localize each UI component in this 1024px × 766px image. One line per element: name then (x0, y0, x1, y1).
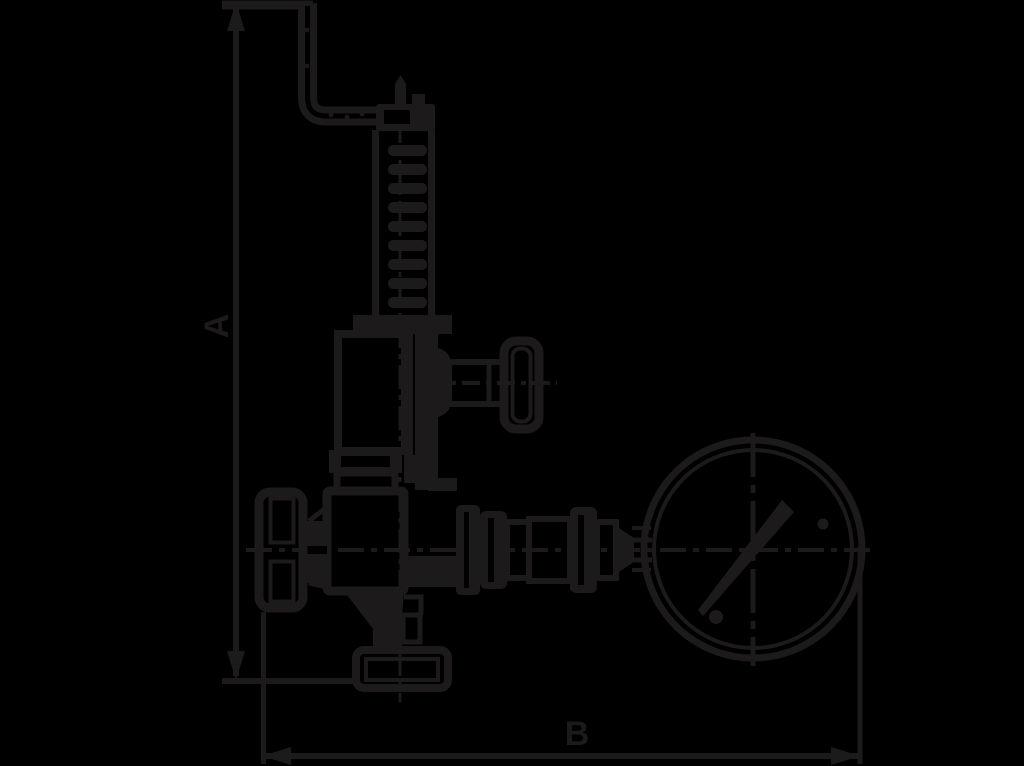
dimension-b-label: B (565, 715, 590, 753)
branch-face-collar-slot (464, 512, 469, 588)
adjusting-stem-tip (395, 75, 406, 84)
bottom-flange (356, 650, 448, 688)
bottom-inlet (344, 591, 448, 688)
bonnet-block (338, 334, 409, 451)
drain-plug-step (404, 597, 421, 615)
cap-step (412, 94, 425, 105)
valve-technical-drawing: A B (0, 0, 1024, 766)
gauge-branch (404, 478, 652, 595)
mid-flange-upper-window (341, 456, 390, 467)
left-handwheel-window-top (271, 499, 294, 543)
lever-tube (308, 3, 381, 116)
dimension-a-label: A (198, 314, 236, 339)
branch-bridge (428, 478, 457, 491)
cap-window (384, 110, 410, 124)
adjusting-stem (395, 84, 406, 105)
spring-housing (353, 130, 452, 334)
gauge-dial-dot (818, 519, 829, 530)
mid-flanges (329, 450, 430, 492)
gauge-needle-counterweight (709, 610, 723, 624)
bottom-flange-face (366, 659, 438, 680)
dimension-b-arrow-right-icon (831, 747, 860, 765)
lift-lever (305, 3, 380, 119)
main-body (301, 491, 404, 591)
dimension-a: A (198, 2, 357, 681)
drawing-canvas: A B (0, 0, 1024, 766)
mid-flange-right-step (404, 455, 430, 483)
drain-plug (403, 615, 420, 642)
union-nut-2-slot (578, 515, 584, 585)
body-block (327, 491, 404, 591)
dimension-a-arrow-down-icon (227, 651, 245, 680)
gauge-needle (698, 500, 794, 616)
union-nut-1-slot (488, 518, 494, 582)
bonnet-top-cap (376, 75, 435, 131)
adapter-cone (616, 526, 634, 574)
bottom-cone (344, 591, 404, 629)
spring-coils (388, 145, 427, 308)
dimension-b-arrow-left-icon (262, 747, 291, 765)
left-handwheel-window-bottom (271, 562, 294, 602)
branch-passage (404, 556, 456, 587)
lever-tube-bore (308, 6, 381, 116)
